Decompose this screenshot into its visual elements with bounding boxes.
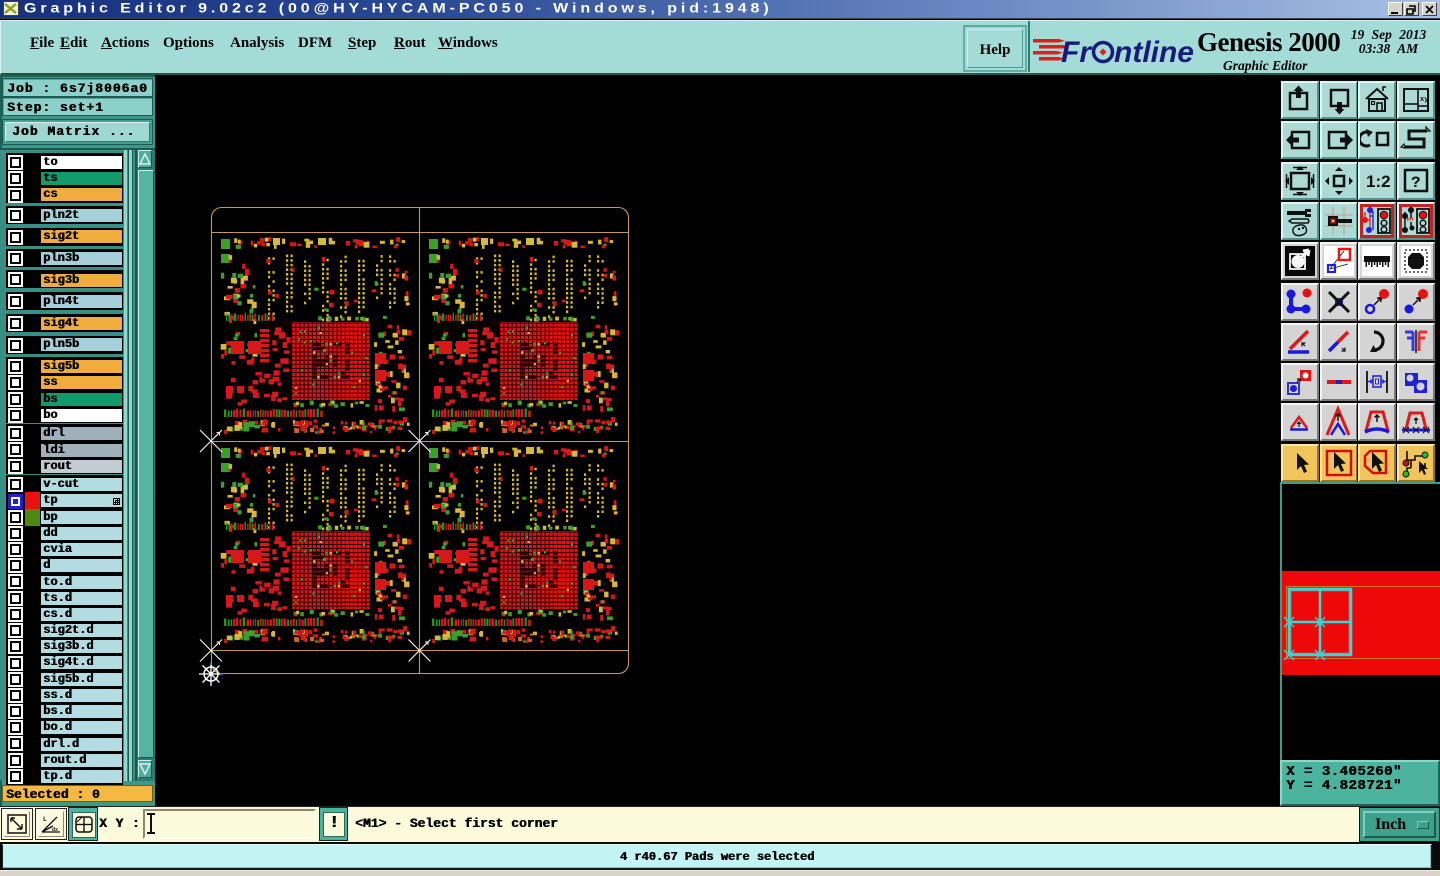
svg-text:dx: dx [52,827,58,833]
svg-text:1:2: 1:2 [1366,172,1391,191]
svg-text:?: ? [1411,174,1421,192]
svg-text:Fr: Fr [1061,36,1093,69]
svg-text:L: L [43,816,47,823]
svg-text:ntline: ntline [1114,36,1194,69]
svg-text:xy: xy [1420,96,1429,104]
